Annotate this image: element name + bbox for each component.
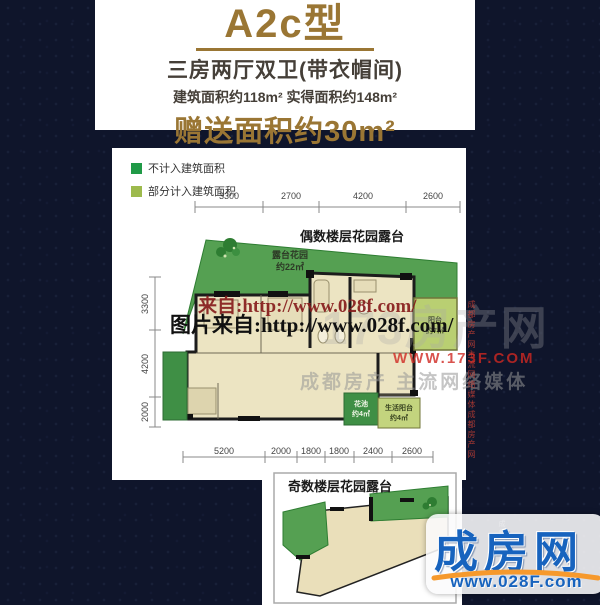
life-balcony-name: 生活阳台 (385, 403, 413, 412)
unit-subtitle: 三房两厅双卫(带衣帽间) (95, 54, 475, 84)
watermark-site: WWW.173F.COM (393, 350, 535, 367)
legend-label: 不计入建筑面积 (148, 160, 225, 176)
dim-top-2: 2700 (281, 191, 301, 201)
title-box: A2c型 三房两厅双卫(带衣帽间) 建筑面积约118m² 实得面积约148m² … (95, 0, 475, 130)
flower-bed (344, 393, 378, 425)
dim-bottom-4: 1800 (329, 446, 349, 456)
legend-swatch-light-green (131, 186, 142, 197)
legend-label: 部分计入建筑面积 (148, 183, 236, 199)
bonus-area-text: 赠送面积约30m² (95, 108, 475, 150)
even-floor-label: 偶数楼层花园露台 (300, 229, 404, 244)
left-green-strip (163, 352, 187, 420)
legend-item-excluded: 不计入建筑面积 (131, 160, 236, 176)
watermark-url-line2: 图片来自:http://www.028f.com/ (170, 309, 453, 339)
legend: 不计入建筑面积 部分计入建筑面积 (131, 160, 236, 206)
life-balcony (378, 398, 420, 428)
dim-bottom-2: 2000 (271, 446, 291, 456)
life-balcony-area: 约4㎡ (390, 413, 408, 422)
dim-bottom-6: 2600 (402, 446, 422, 456)
flower-bed-name: 花池 (354, 399, 368, 408)
terrace-area: 约22㎡ (276, 261, 304, 272)
legend-item-partial: 部分计入建筑面积 (131, 183, 236, 199)
odd-floor-label: 奇数楼层花园露台 (288, 479, 392, 494)
page-background: A2c型 三房两厅双卫(带衣帽间) 建筑面积约118m² 实得面积约148m² … (0, 0, 600, 605)
unit-type-title: A2c型 (196, 2, 373, 51)
dim-left-1: 3300 (140, 294, 150, 314)
dim-bottom-5: 2400 (363, 446, 383, 456)
dim-top-4: 2600 (423, 191, 443, 201)
brand-logo: 成房网 www.028F.com (420, 514, 600, 605)
terrace-name: 露台花园 (272, 249, 308, 260)
dim-top-3: 4200 (353, 191, 373, 201)
flower-bed-area: 约4㎡ (352, 409, 370, 418)
dimension-left (149, 277, 161, 427)
dim-bottom-3: 1800 (301, 446, 321, 456)
dim-bottom-1: 5200 (214, 446, 234, 456)
dim-left-3: 2000 (140, 402, 150, 422)
brand-logo-url: www.028F.com (434, 572, 599, 592)
vertical-watermark-right: 成都房产网主流网络媒体成都房产网 (466, 300, 477, 485)
watermark-media-tagline: 成都房产 主流网络媒体 (300, 367, 528, 394)
legend-swatch-dark-green (131, 163, 142, 174)
area-text: 建筑面积约118m² 实得面积约148m² (95, 87, 475, 107)
dim-left-2: 4200 (140, 354, 150, 374)
